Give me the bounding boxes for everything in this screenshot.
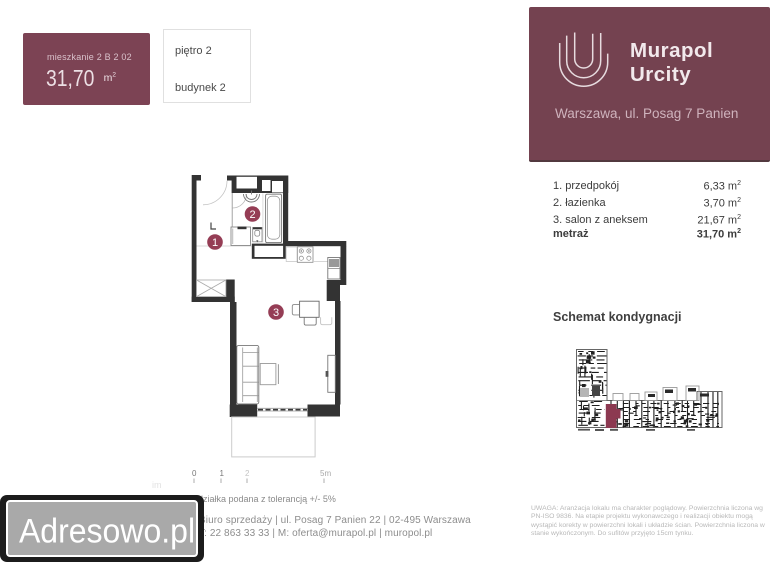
svg-text:im: im xyxy=(152,480,162,490)
svg-text:5m: 5m xyxy=(320,469,331,478)
svg-text:0: 0 xyxy=(192,469,197,478)
svg-text:3: 3 xyxy=(273,307,279,319)
svg-text:1: 1 xyxy=(220,469,225,478)
svg-text:1: 1 xyxy=(212,237,218,249)
svg-text:2: 2 xyxy=(249,209,255,221)
svg-text:2: 2 xyxy=(245,469,250,478)
